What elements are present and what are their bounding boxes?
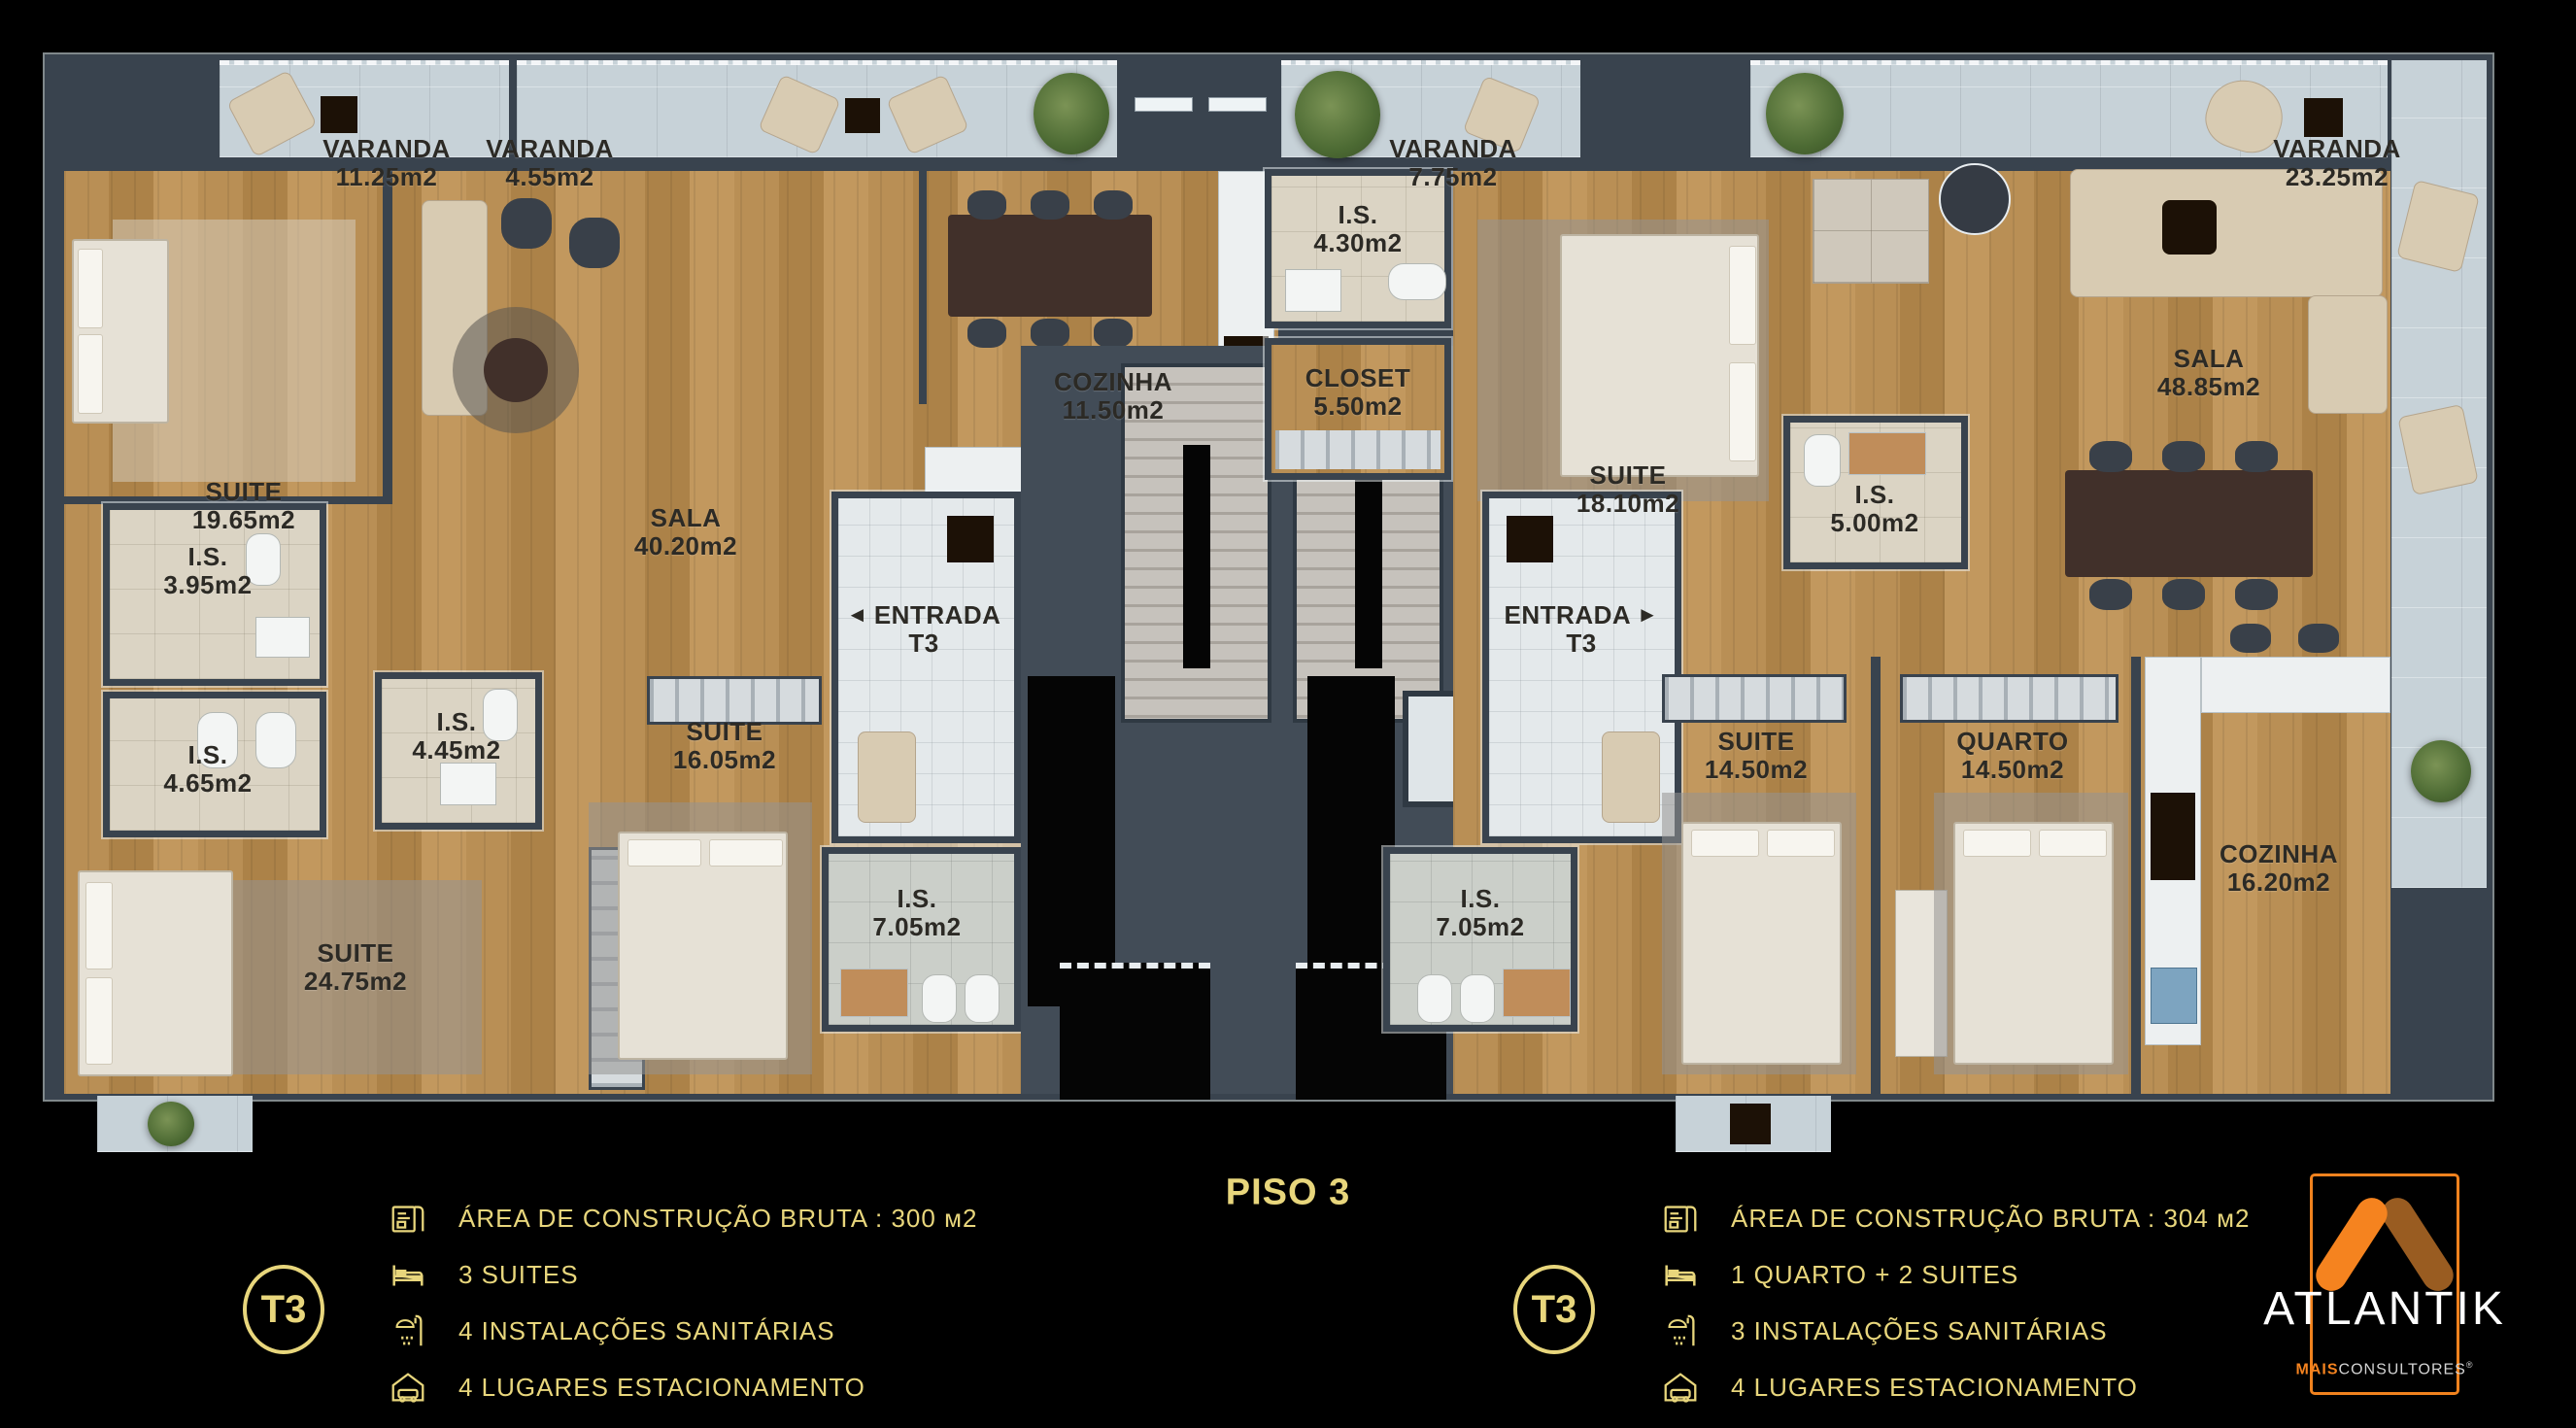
room-label-varanda-1: VARANDA 4.55m2 [486,135,614,191]
pillow [2039,830,2107,857]
room-label-is-4-45: I.S. 4.45m2 [412,708,500,765]
lounge-chair [2396,180,2480,273]
stool [2298,624,2339,653]
garage-icon [1659,1366,1702,1409]
chair [1094,319,1133,348]
shower-icon [1659,1309,1702,1352]
pillow [709,839,783,867]
room-label-is-5-00: I.S. 5.00m2 [1830,481,1918,537]
room-label-is-3-95: I.S. 3.95m2 [163,543,252,599]
pillow [627,839,701,867]
coffee-table [484,338,548,402]
toilet [1417,974,1452,1023]
room-label-suite-24-75: SUITE 24.75m2 [304,939,407,996]
legend-item-rooms: 1 QUARTO + 2 SUITES [1659,1253,2250,1296]
legend-item-parking: 4 LUGARES ESTACIONAMENTO [387,1366,977,1409]
round-rug [1939,163,2011,235]
pillow [85,977,113,1065]
armchair [569,218,620,268]
lounge-chair [226,70,318,157]
pillow [1691,830,1759,857]
stool [2230,624,2271,653]
wardrobe [1275,430,1441,469]
balcony-table [321,96,357,133]
blueprint-icon [1659,1197,1702,1240]
cooktop [2151,793,2195,880]
bed [72,239,169,424]
pillow [1963,830,2031,857]
side-balcony [2391,60,2487,888]
bed-icon [1659,1253,1702,1296]
bidet [965,974,1000,1023]
bed [618,832,788,1060]
dining-table [2065,470,2313,577]
brand-subtitle: MAISCONSULTORES® [2296,1360,2474,1378]
sink [1285,269,1341,312]
room-label-is-4-30: I.S. 4.30m2 [1313,201,1402,257]
legend-item-suites: 3 SUITES [387,1253,977,1296]
room-label-cozinha-11-50: COZINHA 11.50m2 [1054,368,1172,425]
legend-item-bathrooms: 3 INSTALAÇÕES SANITÁRIAS [1659,1309,2250,1352]
stair-void [1183,445,1210,668]
brand-name: ATLANTIK [2263,1282,2506,1336]
legend-item-area: ÁREA DE CONSTRUÇÃO BRUTA : 300 м2 [387,1197,977,1240]
room-label-varanda-3: VARANDA 7.75m2 [1389,135,1517,191]
wall [2131,657,2141,1094]
floorplan-sheet: VARANDA 4.55m2 VARANDA 11.25m2 VARANDA 7… [0,0,2576,1428]
room-label-varanda-4: VARANDA 23.25m2 [2273,135,2401,191]
atlantik-a-mark-icon [2310,1192,2393,1297]
unit-badge-left: T3 [243,1265,324,1354]
legend-left: ÁREA DE CONSTRUÇÃO BRUTA : 300 м2 3 SUIT… [387,1197,977,1409]
console [947,516,994,562]
vanity [1503,969,1571,1017]
bench [1602,731,1660,823]
chair [2162,579,2205,610]
floor-plan: VARANDA 4.55m2 VARANDA 11.25m2 VARANDA 7… [45,54,2492,1100]
pillow [78,334,103,414]
bed [78,870,233,1076]
room-label-is-4-65: I.S. 4.65m2 [163,741,252,798]
vanity [1848,432,1926,475]
wall [919,171,927,404]
bed-icon [387,1253,429,1296]
armchair [501,198,552,249]
chair [2235,579,2278,610]
room-label-is-7-05-right: I.S. 7.05m2 [1436,885,1524,941]
plant [1034,73,1109,154]
chair [2089,441,2132,472]
room-label-suite-14-50: SUITE 14.50m2 [1705,728,1808,784]
plant [148,1102,194,1146]
room-label-suite-19-65: SUITE 19.65m2 [192,478,295,534]
toilet [255,712,296,768]
plant [1766,73,1844,154]
chair [2235,441,2278,472]
chair [967,319,1006,348]
window [1135,97,1193,112]
room-label-closet: CLOSET 5.50m2 [1305,364,1410,421]
garage-icon [387,1366,429,1409]
bidet [1460,974,1495,1023]
pillow [1767,830,1835,857]
lounge-chair [2397,404,2479,495]
console [1507,516,1553,562]
shaft [1307,676,1395,1006]
wall [383,171,392,501]
room-label-varanda-2: VARANDA 11.25m2 [322,135,451,191]
bed [1953,822,2114,1065]
dining-table [948,215,1152,317]
room-label-sala-48-85: SALA 48.85m2 [2157,345,2260,401]
entry-hall-left [831,492,1021,843]
chair [1094,190,1133,220]
pillow [1729,362,1756,461]
unit-badge-right: T3 [1513,1265,1595,1354]
wardrobe [1900,674,2118,723]
toilet [922,974,957,1023]
floor-cushions [1813,179,1929,284]
shaft [1028,676,1115,1006]
room-label-suite-18-10: SUITE 18.10m2 [1576,461,1679,518]
pillow [85,882,113,969]
coffee-table [2162,200,2217,255]
legend-item-parking: 4 LUGARES ESTACIONAMENTO [1659,1366,2250,1409]
wardrobe [1662,674,1847,723]
wall [1871,657,1881,1094]
planter-box [1730,1104,1771,1144]
chair [967,190,1006,220]
balcony-table [845,98,880,133]
legend-right: ÁREA DE CONSTRUÇÃO BRUTA : 304 м2 1 QUAR… [1659,1197,2250,1409]
chair [1031,319,1069,348]
bench [858,731,916,823]
room-label-entrada-right: ENTRADA► T3 [1505,601,1659,658]
plant [2411,740,2471,802]
entry-hall-right [1482,492,1681,843]
chair [2162,441,2205,472]
room-label-sala-40-20: SALA 40.20m2 [634,504,737,561]
room-label-is-7-05-left: I.S. 7.05m2 [872,885,961,941]
bed [1560,234,1759,477]
sink [255,617,310,658]
vanity [840,969,908,1017]
window [1208,97,1267,112]
blueprint-icon [387,1197,429,1240]
pillow [1729,246,1756,345]
balcony-table [2304,98,2343,137]
bathtub [1388,263,1446,300]
room-label-cozinha-16-20: COZINHA 16.20m2 [2220,840,2338,897]
chair [1031,190,1069,220]
shower-icon [387,1309,429,1352]
kitchen-peninsula [2201,657,2390,713]
legend-item-bathrooms: 4 INSTALAÇÕES SANITÁRIAS [387,1309,977,1352]
sink [440,763,496,805]
pillow [78,249,103,328]
legend-item-area: ÁREA DE CONSTRUÇÃO BRUTA : 304 м2 [1659,1197,2250,1240]
atlantik-a-mark-icon [2376,1192,2459,1297]
lounge-chair [758,74,841,154]
toilet [1804,434,1841,487]
planter-stub [1676,1096,1831,1152]
plant [1295,71,1380,158]
core-doorway [1060,963,1210,1100]
lounge-chair [886,74,969,154]
sink [2151,968,2197,1024]
room-label-entrada-left: ◄ENTRADA T3 [847,601,1001,658]
floor-title: PISO 3 [1226,1173,1351,1214]
sofa [2308,295,2388,414]
bed [1681,822,1842,1065]
planter-stub [97,1096,253,1152]
room-label-suite-16-05: SUITE 16.05m2 [673,718,776,774]
room-label-quarto-14-50: QUARTO 14.50m2 [1956,728,2068,784]
chair [2089,579,2132,610]
